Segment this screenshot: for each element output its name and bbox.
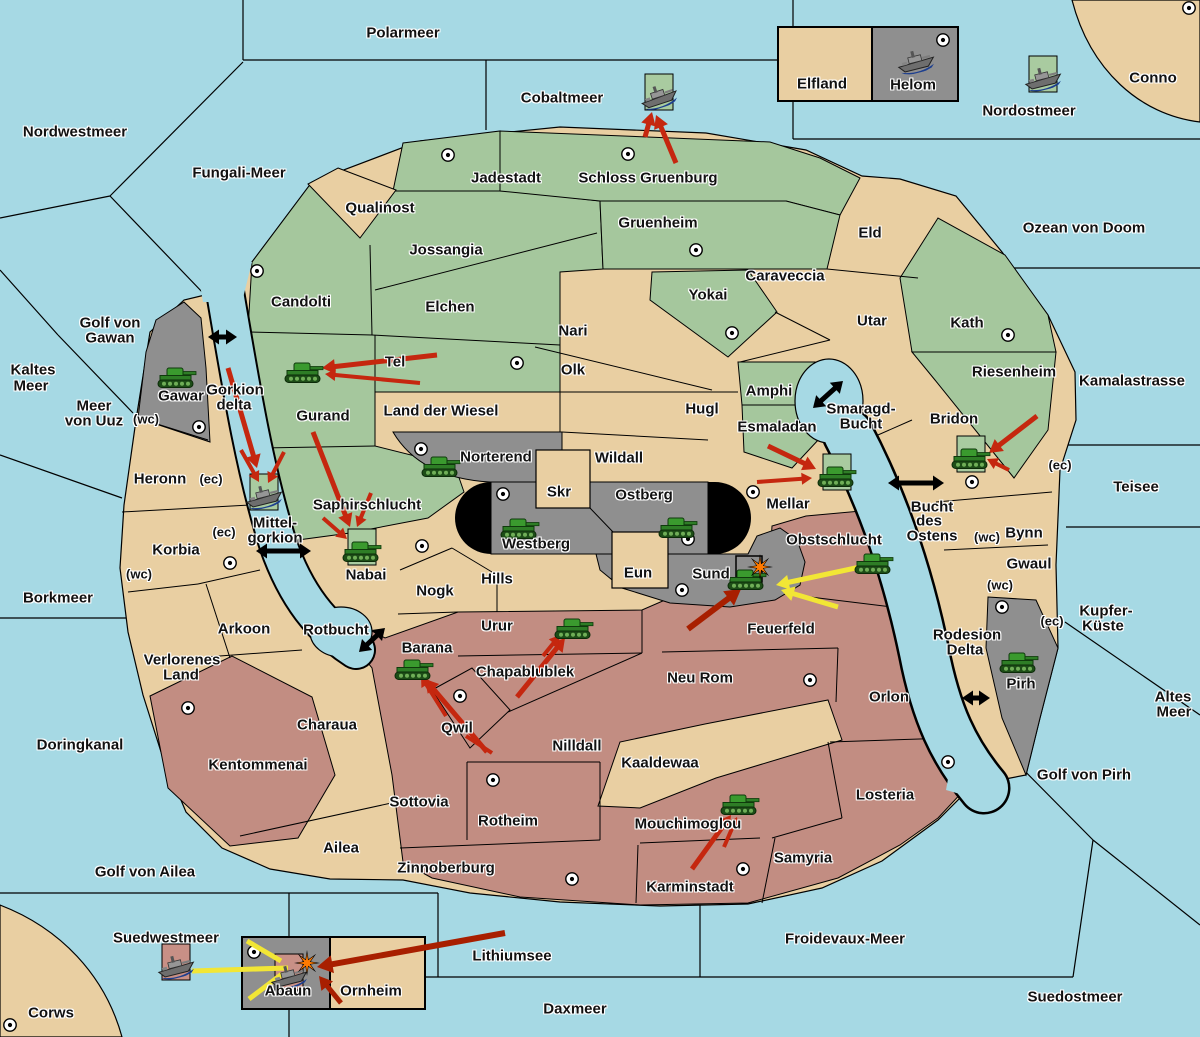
supply-center-icon <box>511 357 523 369</box>
supply-center-icon <box>737 863 749 875</box>
supply-center-icon <box>726 327 738 339</box>
supply-center-icon <box>442 149 454 161</box>
supply-center-icon <box>454 690 466 702</box>
supply-center-icon <box>566 873 578 885</box>
supply-center-icon <box>487 774 499 786</box>
supply-center-icon <box>690 244 702 256</box>
supply-center-icon <box>182 702 194 714</box>
region-skr-box <box>536 450 590 508</box>
region-elfland <box>778 27 872 101</box>
explosion-icon <box>294 950 320 976</box>
supply-center-icon <box>966 476 978 488</box>
supply-center-icon <box>622 148 634 160</box>
supply-center-icon <box>942 756 954 768</box>
supply-center-icon <box>804 674 816 686</box>
supply-center-icon <box>937 34 949 46</box>
support-arrow <box>192 968 288 971</box>
map-canvas[interactable] <box>0 0 1200 1037</box>
supply-center-icon <box>224 557 236 569</box>
explosion-icon <box>747 554 773 580</box>
supply-center-icon <box>1002 329 1014 341</box>
supply-center-icon <box>747 486 759 498</box>
game-map[interactable]: PolarmeerNordwestmeerFungali-MeerCobaltm… <box>0 0 1200 1037</box>
supply-center-icon <box>193 421 205 433</box>
supply-center-icon <box>251 265 263 277</box>
supply-center-icon <box>415 443 427 455</box>
supply-center-icon <box>1183 2 1195 14</box>
supply-center-icon <box>676 584 688 596</box>
supply-center-icon <box>4 1019 16 1031</box>
region-eun-box <box>612 532 668 588</box>
supply-center-icon <box>996 601 1008 613</box>
supply-center-icon <box>497 488 509 500</box>
supply-center-icon <box>416 540 428 552</box>
